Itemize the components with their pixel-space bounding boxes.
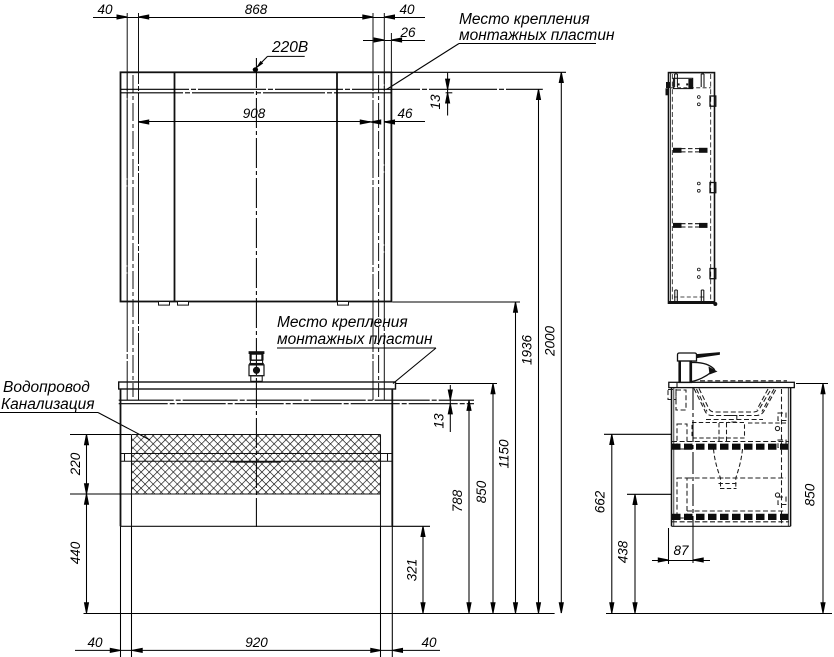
svg-text:Место крепления: Место крепления <box>459 11 590 28</box>
svg-text:850: 850 <box>474 480 489 503</box>
svg-text:1936: 1936 <box>520 334 535 365</box>
svg-text:908: 908 <box>243 106 266 121</box>
svg-text:2000: 2000 <box>542 325 557 357</box>
svg-text:Водопровод: Водопровод <box>3 379 90 396</box>
svg-text:40: 40 <box>87 635 103 650</box>
svg-text:220В: 220В <box>271 39 308 56</box>
svg-text:монтажных пластин: монтажных пластин <box>277 331 433 348</box>
svg-text:920: 920 <box>245 635 268 650</box>
svg-text:40: 40 <box>399 2 415 17</box>
svg-text:868: 868 <box>245 2 268 17</box>
svg-text:46: 46 <box>397 106 413 121</box>
svg-text:220: 220 <box>68 452 83 476</box>
svg-text:26: 26 <box>399 25 416 40</box>
svg-text:440: 440 <box>68 541 83 564</box>
svg-text:Место крепления: Место крепления <box>277 314 408 331</box>
svg-text:788: 788 <box>450 489 465 512</box>
svg-text:Канализация: Канализация <box>1 396 95 413</box>
svg-text:монтажных пластин: монтажных пластин <box>459 27 615 44</box>
svg-text:438: 438 <box>616 540 631 563</box>
svg-text:662: 662 <box>593 490 608 513</box>
svg-text:13: 13 <box>432 413 447 429</box>
svg-text:850: 850 <box>803 483 818 506</box>
svg-text:87: 87 <box>673 543 689 558</box>
svg-text:321: 321 <box>405 559 420 582</box>
svg-text:40: 40 <box>97 2 113 17</box>
svg-text:13: 13 <box>428 94 443 110</box>
svg-text:40: 40 <box>421 635 437 650</box>
svg-text:1150: 1150 <box>497 439 512 469</box>
